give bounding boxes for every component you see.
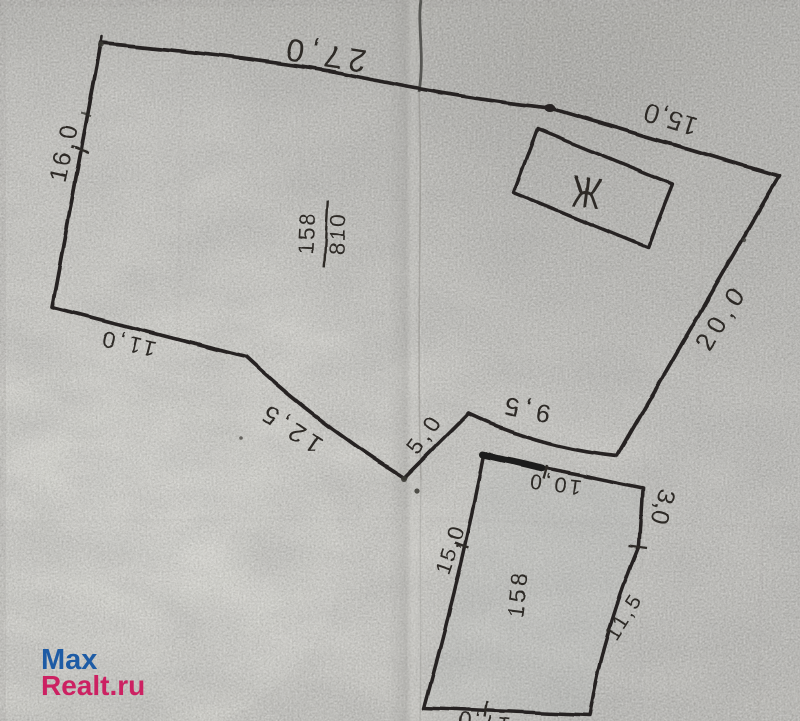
svg-text:158: 158 bbox=[293, 211, 320, 255]
svg-text:810: 810 bbox=[324, 212, 351, 256]
svg-text:Ж: Ж bbox=[569, 165, 604, 218]
svg-text:Realt.ru: Realt.ru bbox=[41, 670, 145, 701]
